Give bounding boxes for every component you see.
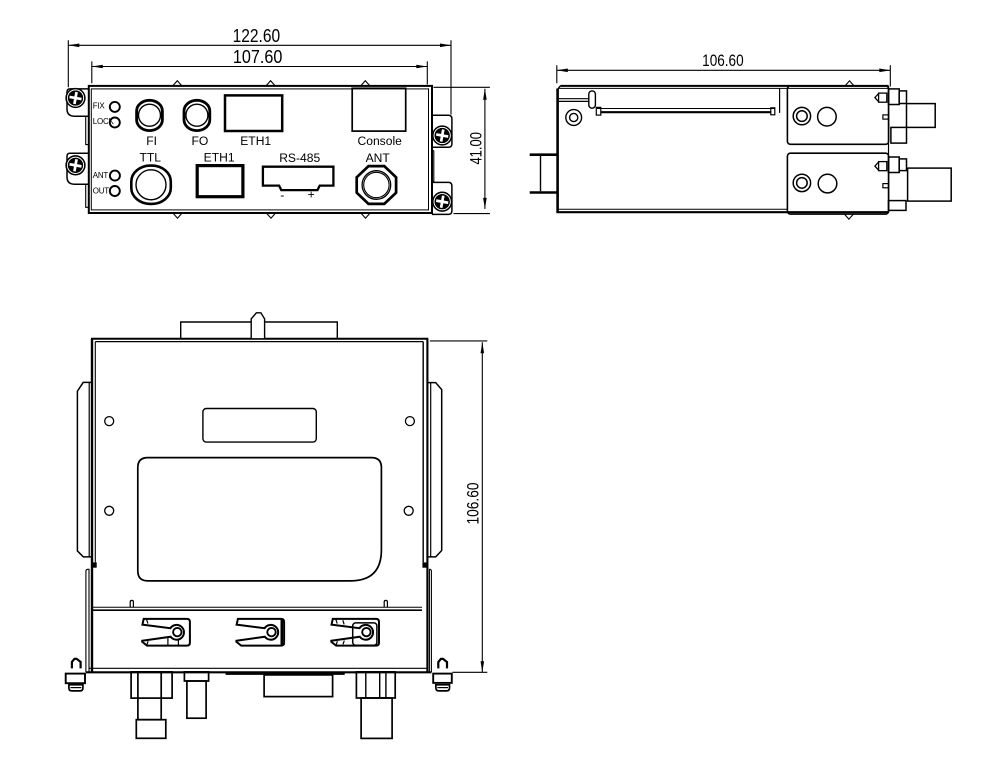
svg-text:LOCK: LOCK — [93, 117, 115, 126]
svg-text:FO: FO — [192, 134, 209, 148]
svg-text:ANT: ANT — [93, 171, 109, 180]
svg-text:RS-485: RS-485 — [279, 151, 320, 165]
svg-text:+: + — [308, 188, 315, 202]
svg-text:ANT: ANT — [366, 151, 391, 165]
svg-text:FI: FI — [146, 134, 157, 148]
svg-text:TTL: TTL — [139, 151, 161, 165]
svg-text:41.00: 41.00 — [467, 132, 485, 165]
svg-text:OUT: OUT — [93, 187, 110, 196]
svg-text:Console: Console — [358, 134, 403, 148]
svg-text:ETH1: ETH1 — [240, 134, 271, 148]
svg-text:FIX: FIX — [93, 102, 106, 111]
svg-text:106.60: 106.60 — [465, 483, 483, 525]
svg-text:-: - — [280, 188, 284, 202]
svg-text:ETH1: ETH1 — [204, 151, 235, 165]
svg-text:106.60: 106.60 — [702, 52, 744, 70]
svg-text:122.60: 122.60 — [233, 25, 281, 46]
svg-text:107.60: 107.60 — [233, 46, 283, 67]
